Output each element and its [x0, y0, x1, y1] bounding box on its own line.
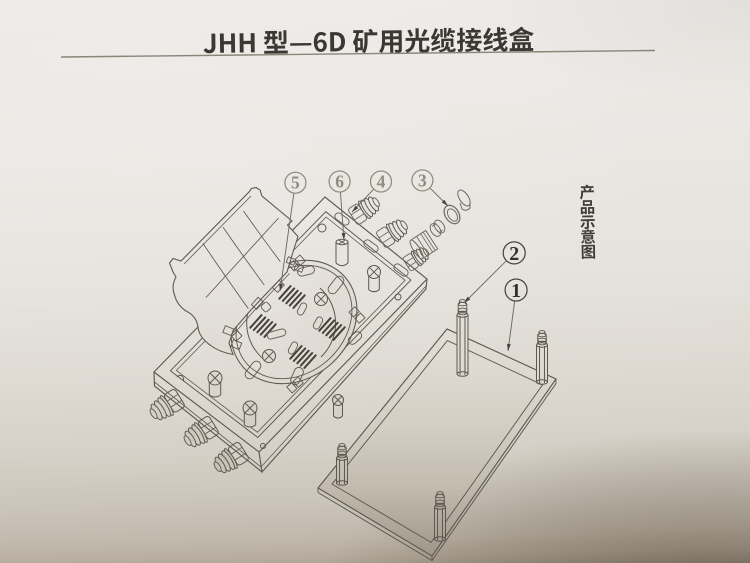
svg-text:4: 4 [377, 172, 386, 192]
svg-text:3: 3 [418, 170, 427, 190]
svg-text:2: 2 [509, 243, 519, 265]
svg-text:5: 5 [291, 173, 300, 193]
svg-text:1: 1 [511, 280, 521, 302]
svg-text:6: 6 [335, 172, 344, 192]
